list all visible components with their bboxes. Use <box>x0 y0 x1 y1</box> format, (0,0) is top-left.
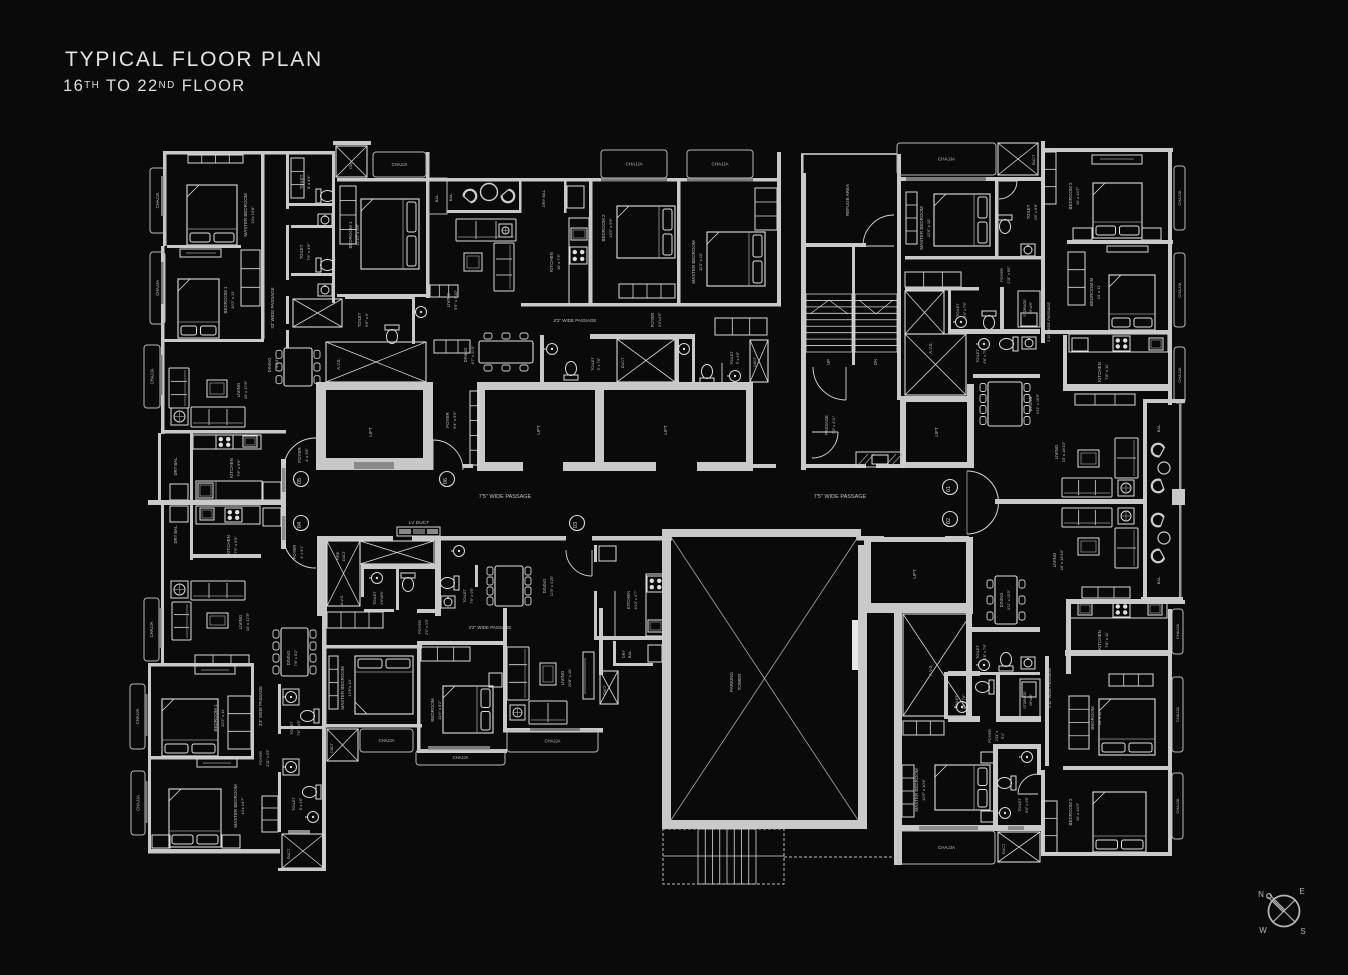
svg-text:LIFT: LIFT <box>934 427 939 437</box>
svg-text:CHAJJA: CHAJJA <box>1177 282 1182 297</box>
svg-text:MASTER BEDROOM: MASTER BEDROOM <box>340 666 345 710</box>
svg-text:03: 03 <box>573 522 579 528</box>
svg-text:06: 06 <box>443 478 449 484</box>
svg-text:BEDROOM 1: BEDROOM 1 <box>223 286 228 314</box>
svg-text:DINING: DINING <box>999 593 1004 608</box>
svg-text:BAL.: BAL. <box>434 194 439 203</box>
svg-text:FOYER: FOYER <box>292 545 297 559</box>
svg-text:11'6" x 8'2": 11'6" x 8'2" <box>437 700 442 720</box>
svg-text:11'5" x 10': 11'5" x 10' <box>698 253 703 271</box>
svg-text:12'6" x 10'4": 12'6" x 10'4" <box>921 778 926 801</box>
svg-text:MASTER BEDROOM: MASTER BEDROOM <box>919 206 924 250</box>
svg-text:10' x 18'10": 10' x 18'10" <box>1061 441 1066 462</box>
svg-text:DRY BAL.: DRY BAL. <box>173 457 178 476</box>
svg-text:TOILET: TOILET <box>299 174 304 189</box>
svg-text:DUCT: DUCT <box>287 848 291 859</box>
svg-text:10'2" x 11': 10'2" x 11' <box>220 709 225 727</box>
svg-text:CHAJJA: CHAJJA <box>1175 707 1180 722</box>
svg-text:02: 02 <box>946 518 952 524</box>
svg-text:CHAJJA: CHAJJA <box>1177 190 1182 205</box>
svg-text:BAL.: BAL. <box>628 650 632 658</box>
svg-text:KITCHEN: KITCHEN <box>626 591 631 609</box>
svg-text:11'5" x 4'25": 11'5" x 4'25" <box>550 575 554 596</box>
svg-text:FOYER: FOYER <box>258 751 263 765</box>
svg-text:4'6"x8'6": 4'6"x8'6" <box>380 590 384 604</box>
svg-text:04: 04 <box>297 522 303 528</box>
svg-text:KITCHEN: KITCHEN <box>226 535 231 555</box>
svg-text:N: N <box>1258 890 1264 899</box>
svg-text:8'7" x 21'0": 8'7" x 21'0" <box>471 345 475 364</box>
svg-text:BAL.: BAL. <box>448 193 453 202</box>
svg-text:DINING: DINING <box>1028 397 1033 412</box>
svg-text:LIVING: LIVING <box>446 292 451 307</box>
svg-text:DUCT: DUCT <box>1032 154 1036 165</box>
svg-text:3'3" WIDE PASSAGE: 3'3" WIDE PASSAGE <box>258 686 263 726</box>
svg-text:05: 05 <box>297 478 303 484</box>
svg-text:4'6" x 7'6": 4'6" x 7'6" <box>983 643 987 659</box>
svg-text:10' x 17'8": 10' x 17'8" <box>243 380 248 399</box>
svg-text:CHAJJA: CHAJJA <box>149 621 154 637</box>
svg-text:A.V.S.: A.V.S. <box>340 595 344 605</box>
svg-text:BEDROOM M: BEDROOM M <box>1089 278 1094 307</box>
svg-text:7'8" x 11': 7'8" x 11' <box>1104 364 1109 380</box>
svg-text:12'6" x 10': 12'6" x 10' <box>926 219 931 238</box>
svg-text:BEDROOM: BEDROOM <box>430 698 435 722</box>
svg-text:3'11" x 10'9": 3'11" x 10'9" <box>1036 393 1040 414</box>
svg-text:BEDROOM 2: BEDROOM 2 <box>1068 798 1073 826</box>
svg-text:TOILET: TOILET <box>729 350 734 364</box>
svg-text:7'8" x 11': 7'8" x 11' <box>1104 632 1109 648</box>
svg-text:BEDROOM 2: BEDROOM 2 <box>601 214 606 242</box>
svg-text:2'11" x: 2'11" x <box>995 731 999 742</box>
svg-text:UP: UP <box>826 359 831 365</box>
svg-text:TOILET: TOILET <box>357 312 362 327</box>
svg-text:W: W <box>1259 926 1267 935</box>
svg-text:S: S <box>1300 927 1305 936</box>
svg-text:CHAJJA: CHAJJA <box>938 845 955 850</box>
svg-text:5' x 7'6": 5' x 7'6" <box>597 357 601 370</box>
svg-text:BEDROOM 2: BEDROOM 2 <box>1068 182 1073 210</box>
svg-text:CHAJJA: CHAJJA <box>545 739 561 744</box>
svg-text:MASTER BEDROOM: MASTER BEDROOM <box>243 193 248 237</box>
svg-text:2'11" WIDE PASSAGE: 2'11" WIDE PASSAGE <box>1046 302 1051 342</box>
svg-text:10' x 14'7": 10' x 14'7" <box>1075 186 1080 205</box>
svg-text:KITCHEN: KITCHEN <box>1097 362 1102 382</box>
svg-text:6'6" x 6': 6'6" x 6' <box>364 313 369 327</box>
svg-text:MASTER BEDROOM: MASTER BEDROOM <box>914 768 919 812</box>
svg-text:CHAJJA: CHAJJA <box>1177 367 1182 382</box>
svg-text:DRY: DRY <box>622 650 626 658</box>
svg-text:4'6"x2'6": 4'6"x2'6" <box>1029 302 1033 314</box>
svg-text:KITCHEN: KITCHEN <box>549 252 554 272</box>
svg-text:13'5" x 9'9": 13'5" x 9'9" <box>608 218 613 238</box>
svg-text:E: E <box>1299 887 1304 896</box>
svg-text:2'11" x 3'3": 2'11" x 3'3" <box>266 749 270 767</box>
svg-text:4'6" x 7'6": 4'6" x 7'6" <box>963 301 967 317</box>
svg-text:CHAJJA: CHAJJA <box>625 162 642 167</box>
svg-text:DINING: DINING <box>267 358 272 373</box>
svg-text:7'6" x 9'9": 7'6" x 9'9" <box>236 459 241 477</box>
svg-text:BEDROOM 1: BEDROOM 1 <box>213 704 218 732</box>
svg-text:TOILET: TOILET <box>975 348 980 362</box>
svg-text:MASTER BEDROOM: MASTER BEDROOM <box>691 240 696 284</box>
svg-text:2'1" x 3'3": 2'1" x 3'3" <box>425 618 429 634</box>
svg-text:TOILET: TOILET <box>975 644 980 658</box>
svg-text:DRY BAL.: DRY BAL. <box>173 525 178 544</box>
svg-text:9'6" x 9'10": 9'6" x 9'10" <box>453 290 458 310</box>
svg-text:DUCT: DUCT <box>621 357 625 368</box>
svg-text:LIFT: LIFT <box>912 569 917 579</box>
svg-text:7'5" WIDE PASSAGE: 7'5" WIDE PASSAGE <box>479 494 532 500</box>
svg-text:LIVING: LIVING <box>238 614 243 629</box>
svg-text:DINING: DINING <box>286 651 291 666</box>
svg-text:DN: DN <box>349 163 353 169</box>
svg-text:FIRE: FIRE <box>336 551 340 560</box>
svg-text:FOYER: FOYER <box>987 729 992 743</box>
svg-text:10' x 7'3": 10' x 7'3" <box>556 253 561 270</box>
svg-text:FOYER: FOYER <box>650 313 655 327</box>
svg-text:7' x 8'9": 7' x 8'9" <box>275 358 279 372</box>
svg-text:CHAJJA: CHAJJA <box>136 795 141 811</box>
svg-text:CHAJJA: CHAJJA <box>155 192 160 208</box>
svg-text:10'x 14'7": 10'x 14'7" <box>240 797 245 815</box>
svg-text:4'6"x2'6": 4'6"x2'6" <box>1029 694 1033 706</box>
svg-text:10' x 18'10": 10' x 18'10" <box>1059 549 1064 570</box>
svg-text:4'6" x 7'6": 4'6" x 7'6" <box>983 347 987 363</box>
svg-text:5' x 4'6": 5' x 4'6" <box>736 351 740 364</box>
svg-text:MASTER BEDROOM: MASTER BEDROOM <box>233 784 238 828</box>
svg-text:DUCT: DUCT <box>1002 843 1006 854</box>
svg-text:LIVING: LIVING <box>1054 444 1059 459</box>
svg-text:CHAJJA: CHAJJA <box>938 157 955 162</box>
svg-text:TOWER: TOWER <box>737 673 742 690</box>
svg-text:3'3"x4'9": 3'3"x4'9" <box>658 312 662 327</box>
svg-text:CHAJJA: CHAJJA <box>155 280 160 296</box>
svg-text:DN: DN <box>873 359 878 365</box>
svg-text:TYPICAL FLOOR PLAN: TYPICAL FLOOR PLAN <box>65 48 323 71</box>
svg-text:REFUGE AREA: REFUGE AREA <box>845 184 850 216</box>
svg-text:5'4": 5'4" <box>1001 732 1005 739</box>
svg-text:7'6" x 4'6": 7'6" x 4'6" <box>470 587 474 603</box>
svg-text:DUCT: DUCT <box>753 357 757 366</box>
svg-text:LIFT: LIFT <box>368 427 373 437</box>
svg-text:9'4" x 5'9": 9'4" x 5'9" <box>452 411 457 429</box>
svg-text:KITCHEN: KITCHEN <box>1097 630 1102 650</box>
svg-text:TOILET: TOILET <box>1026 204 1031 219</box>
svg-text:TOILET: TOILET <box>462 588 467 602</box>
svg-text:LV DUCT: LV DUCT <box>409 520 429 526</box>
svg-text:CHAJJA: CHAJJA <box>379 738 395 743</box>
svg-text:01: 01 <box>946 486 952 492</box>
svg-text:7'6" x 4'6": 7'6" x 4'6" <box>306 243 311 261</box>
svg-text:4' x 3'8": 4' x 3'8" <box>304 447 309 461</box>
svg-text:TOILET: TOILET <box>291 796 296 810</box>
svg-text:CHAJJA: CHAJJA <box>1175 624 1180 639</box>
svg-text:STORAGE: STORAGE <box>1023 299 1027 317</box>
svg-text:FOYER: FOYER <box>417 620 422 634</box>
svg-text:CHAJJA: CHAJJA <box>1175 798 1180 813</box>
svg-text:TOILET: TOILET <box>1017 797 1022 811</box>
svg-text:33' WIDE PASSAGE: 33' WIDE PASSAGE <box>270 287 275 328</box>
svg-text:DUCT: DUCT <box>330 743 334 752</box>
svg-text:CHAJJA: CHAJJA <box>711 162 728 167</box>
svg-text:DUCT: DUCT <box>342 550 346 561</box>
svg-text:DRY BAL.: DRY BAL. <box>541 189 546 207</box>
svg-text:LIVING: LIVING <box>236 382 241 397</box>
svg-text:PARKING: PARKING <box>729 672 734 692</box>
svg-text:TOILET: TOILET <box>299 244 304 259</box>
svg-text:BEDROOM: BEDROOM <box>1090 706 1095 730</box>
svg-text:A.V.S.: A.V.S. <box>336 358 341 370</box>
svg-text:FOYER: FOYER <box>445 412 450 428</box>
svg-text:A.V.S.: A.V.S. <box>928 342 933 354</box>
svg-text:CHAJJA: CHAJJA <box>453 755 469 760</box>
svg-text:7'3" x 4'11": 7'3" x 4'11" <box>832 415 836 434</box>
svg-text:7'6" x 9'9": 7'6" x 9'9" <box>233 536 238 554</box>
svg-text:3'3" WIDE PASSAGE: 3'3" WIDE PASSAGE <box>554 318 597 323</box>
svg-text:KITCHEN: KITCHEN <box>229 458 234 478</box>
svg-text:DINING: DINING <box>542 579 547 594</box>
svg-text:3'11" x 10'9": 3'11" x 10'9" <box>1007 589 1011 610</box>
svg-text:8' x 4'6": 8' x 4'6" <box>299 797 303 810</box>
svg-text:4'6" x 8'6": 4'6" x 8'6" <box>1034 203 1038 220</box>
svg-text:BAL.: BAL. <box>1156 576 1161 585</box>
svg-text:2'11" x 6'6": 2'11" x 6'6" <box>1007 266 1011 284</box>
svg-text:10'x 13'8": 10'x 13'8" <box>250 206 255 224</box>
svg-text:7'8" x 8'2": 7'8" x 8'2" <box>294 649 298 666</box>
svg-text:LIFT: LIFT <box>663 425 668 435</box>
svg-text:A.V.S.: A.V.S. <box>928 664 933 676</box>
svg-text:TOILET: TOILET <box>372 590 377 604</box>
svg-text:BAL.: BAL. <box>1156 424 1161 433</box>
svg-text:12'6"x 10': 12'6"x 10' <box>347 679 352 696</box>
svg-text:10' x 17'8": 10' x 17'8" <box>245 612 250 631</box>
svg-text:FOYER: FOYER <box>999 268 1004 282</box>
svg-text:20'8" x 10': 20'8" x 10' <box>567 669 572 688</box>
svg-text:TOILET: TOILET <box>955 302 960 316</box>
svg-text:LIFT: LIFT <box>536 425 541 435</box>
svg-text:CHAJJA: CHAJJA <box>392 162 408 167</box>
svg-text:DUCT: DUCT <box>603 684 607 695</box>
svg-text:10' x 14'3": 10' x 14'3" <box>1075 802 1080 821</box>
svg-text:FOYER: FOYER <box>297 447 302 463</box>
svg-text:8'6" x 4'6": 8'6" x 4'6" <box>1025 796 1029 812</box>
svg-text:LIVING: LIVING <box>560 670 565 685</box>
svg-text:TOILET: TOILET <box>590 356 595 370</box>
svg-text:LIVING: LIVING <box>1052 552 1057 567</box>
svg-text:10'2" x 11': 10'2" x 11' <box>230 291 235 309</box>
svg-text:7'5" WIDE PASSAGE: 7'5" WIDE PASSAGE <box>814 494 867 500</box>
svg-text:CHAJJA: CHAJJA <box>150 368 155 384</box>
svg-text:STORAGE: STORAGE <box>1023 691 1027 709</box>
svg-text:10' x 11': 10' x 11' <box>1096 285 1101 300</box>
svg-text:DINING: DINING <box>463 348 468 363</box>
svg-text:4' x 3'1": 4' x 3'1" <box>300 545 304 559</box>
svg-text:CHAJJA: CHAJJA <box>135 708 140 724</box>
svg-text:6'10" x 4'7": 6'10" x 4'7" <box>634 590 638 609</box>
svg-text:8' x 4'9": 8' x 4'9" <box>306 174 311 188</box>
